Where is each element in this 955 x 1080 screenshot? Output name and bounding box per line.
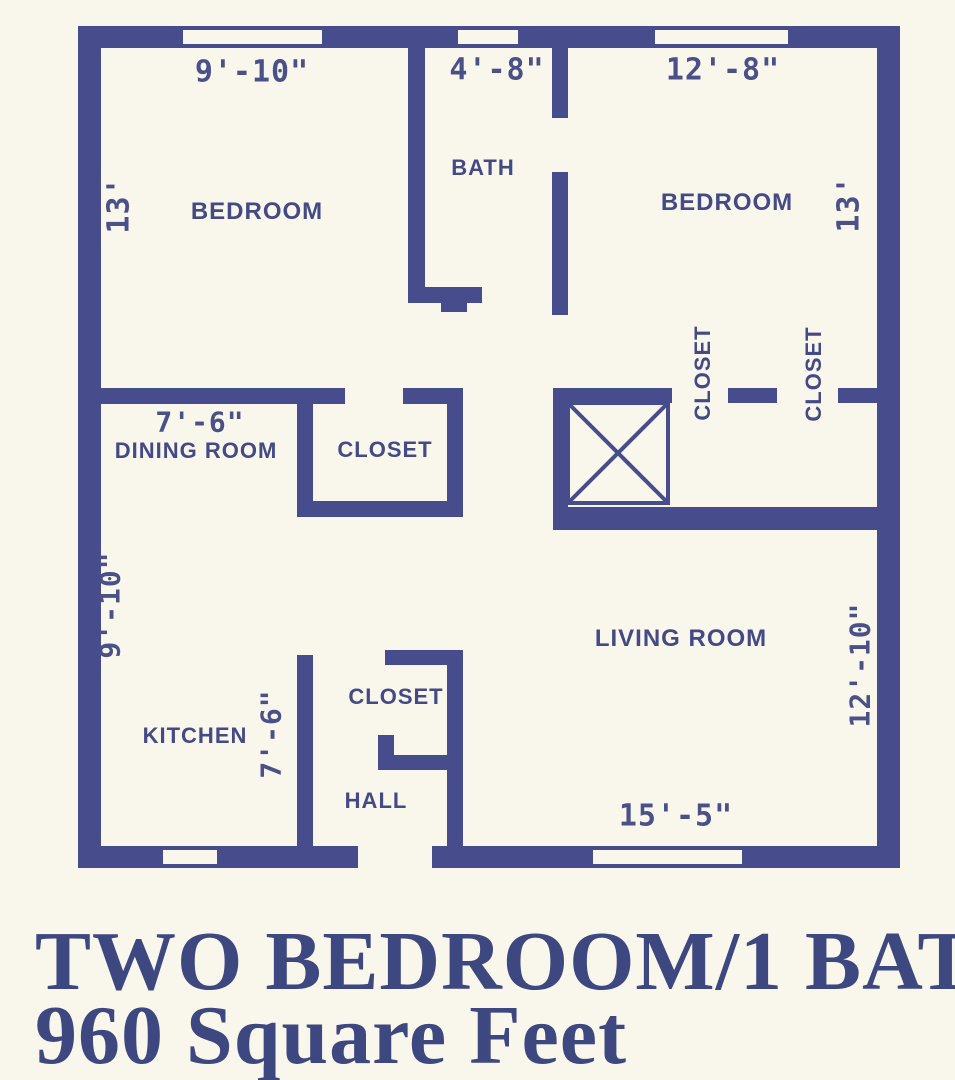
dim-dining-width: 7'-6"	[155, 406, 244, 439]
dining-room-label: DINING ROOM	[115, 438, 278, 464]
bath-label: BATH	[451, 155, 514, 181]
wall-segment	[742, 846, 900, 868]
window	[655, 26, 788, 48]
dim-living-width: 15'-5"	[619, 799, 733, 834]
dim-kitchen-depth: 9'-10"	[94, 551, 127, 658]
dim-living-depth: 12'-10"	[844, 602, 877, 727]
bedroom-right-label: BEDROOM	[661, 189, 793, 217]
dim-bedroom-left-width: 9'-10"	[195, 55, 309, 90]
dim-bath-width: 4'-8"	[449, 53, 544, 88]
wall-segment	[78, 26, 101, 868]
wall-segment	[432, 846, 593, 868]
wall-segment	[553, 507, 877, 530]
door-threshold	[441, 303, 467, 312]
bedroom-left-label: BEDROOM	[191, 198, 323, 226]
window	[593, 846, 742, 868]
wall-segment	[78, 846, 163, 868]
wall-segment	[378, 735, 394, 770]
closet-bedroom-2-label: CLOSET	[801, 326, 827, 421]
window	[458, 26, 518, 48]
utility-x-symbol	[566, 401, 670, 505]
wall-segment	[838, 388, 877, 403]
wall-segment	[447, 650, 463, 846]
hall-label: HALL	[345, 788, 408, 814]
dim-hall-width: 7'-6"	[255, 689, 288, 778]
wall-segment	[217, 846, 358, 868]
closet-hall-label: CLOSET	[348, 684, 443, 710]
wall-segment	[728, 388, 777, 403]
living-room-label: LIVING ROOM	[595, 625, 767, 653]
wall-segment	[297, 655, 313, 846]
wall-segment	[408, 48, 425, 303]
wall-segment	[322, 26, 458, 48]
closet-dining-label: CLOSET	[337, 437, 432, 463]
wall-segment	[297, 388, 313, 517]
window	[183, 26, 322, 48]
wall-segment	[447, 388, 463, 517]
wall-segment	[408, 287, 482, 303]
plan-subtitle: 960 Square Feet	[35, 994, 627, 1078]
wall-segment	[552, 48, 568, 118]
wall-segment	[518, 26, 655, 48]
closet-bedroom-1-label: CLOSET	[690, 325, 716, 420]
wall-segment	[297, 501, 463, 517]
window	[163, 846, 217, 868]
wall-segment	[552, 172, 568, 315]
dim-bedroom-left-depth: 13'	[102, 176, 137, 233]
dim-bedroom-right-depth: 13'	[832, 175, 867, 232]
wall-segment	[877, 26, 900, 868]
dim-bedroom-right-width: 12'-8"	[666, 53, 780, 88]
floor-plan-page: 9'-10" 4'-8" 12'-8" 13' 13' 7'-6" 9'-10"…	[0, 0, 955, 1080]
kitchen-label: KITCHEN	[143, 723, 248, 749]
